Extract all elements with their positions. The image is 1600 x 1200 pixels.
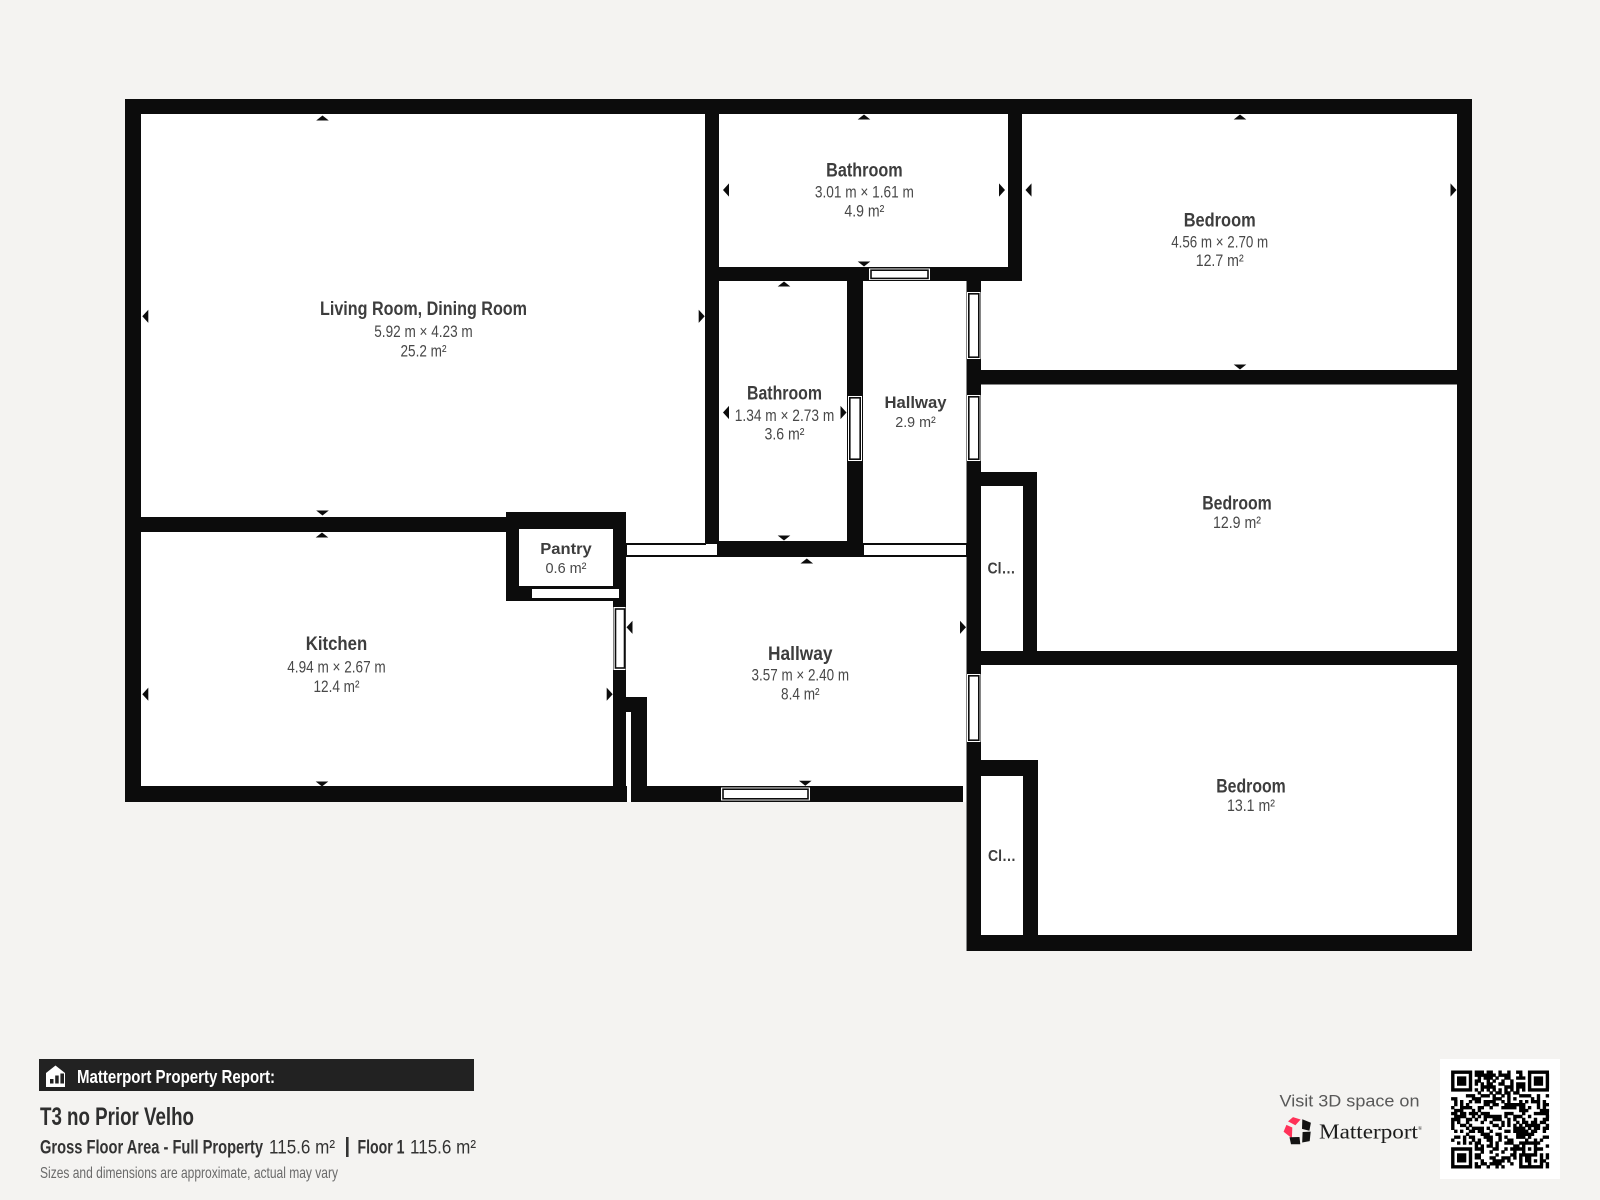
svg-text:T3 no Prior Velho: T3 no Prior Velho — [40, 1103, 194, 1131]
svg-text:4.94 m × 2.67 m: 4.94 m × 2.67 m — [287, 658, 386, 677]
svg-text:4.9 m²: 4.9 m² — [844, 202, 884, 221]
svg-text:®: ® — [1418, 1125, 1422, 1132]
svg-text:Visit 3D space on: Visit 3D space on — [1280, 1093, 1420, 1111]
svg-text:Gross Floor Area - Full Proper: Gross Floor Area - Full Property — [40, 1138, 263, 1159]
svg-text:Pantry: Pantry — [540, 541, 592, 558]
svg-text:Cl…: Cl… — [988, 561, 1016, 578]
svg-text:3.57 m × 2.40 m: 3.57 m × 2.40 m — [752, 665, 850, 684]
svg-text:8.4 m²: 8.4 m² — [781, 685, 820, 704]
svg-text:Cl…: Cl… — [988, 848, 1016, 865]
svg-text:Matterport Property Report:: Matterport Property Report: — [77, 1067, 275, 1087]
svg-text:Bathroom: Bathroom — [747, 384, 822, 405]
svg-text:Matterport: Matterport — [1319, 1120, 1418, 1144]
svg-text:12.4 m²: 12.4 m² — [314, 677, 360, 696]
svg-text:Floor 1: Floor 1 — [358, 1138, 405, 1159]
svg-text:5.92 m × 4.23 m: 5.92 m × 4.23 m — [374, 322, 473, 341]
svg-text:3.01 m × 1.61 m: 3.01 m × 1.61 m — [815, 183, 914, 202]
svg-text:Sizes and dimensions are appro: Sizes and dimensions are approximate, ac… — [40, 1165, 338, 1182]
svg-text:Living Room, Dining Room: Living Room, Dining Room — [320, 299, 527, 320]
svg-text:Hallway: Hallway — [768, 644, 833, 665]
svg-text:12.9 m²: 12.9 m² — [1213, 513, 1261, 532]
svg-text:4.56 m × 2.70 m: 4.56 m × 2.70 m — [1171, 233, 1268, 252]
svg-text:Bathroom: Bathroom — [826, 161, 903, 182]
svg-text:Kitchen: Kitchen — [306, 634, 368, 655]
svg-text:Bedroom: Bedroom — [1216, 776, 1286, 797]
svg-text:1.34 m × 2.73 m: 1.34 m × 2.73 m — [735, 406, 835, 425]
svg-text:3.6 m²: 3.6 m² — [765, 425, 805, 444]
svg-text:2.9 m²: 2.9 m² — [895, 414, 936, 431]
svg-text:13.1 m²: 13.1 m² — [1227, 796, 1275, 815]
svg-text:25.2 m²: 25.2 m² — [401, 342, 447, 361]
svg-text:Hallway: Hallway — [885, 393, 948, 412]
svg-text:Bedroom: Bedroom — [1184, 211, 1256, 232]
svg-text:115.6 m²: 115.6 m² — [410, 1138, 476, 1159]
svg-text:12.7 m²: 12.7 m² — [1196, 251, 1244, 270]
svg-text:0.6 m²: 0.6 m² — [546, 560, 587, 577]
svg-text:115.6 m²: 115.6 m² — [269, 1138, 335, 1159]
svg-text:Bedroom: Bedroom — [1202, 493, 1272, 514]
